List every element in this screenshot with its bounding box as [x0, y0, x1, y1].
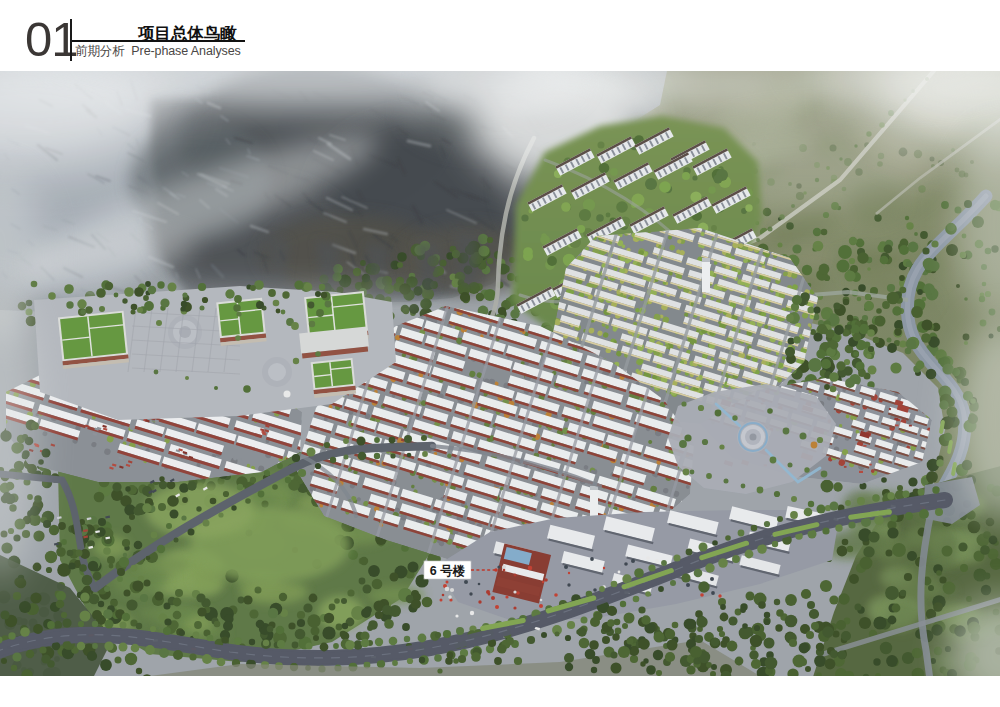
svg-text:6 号楼: 6 号楼 — [430, 564, 466, 578]
